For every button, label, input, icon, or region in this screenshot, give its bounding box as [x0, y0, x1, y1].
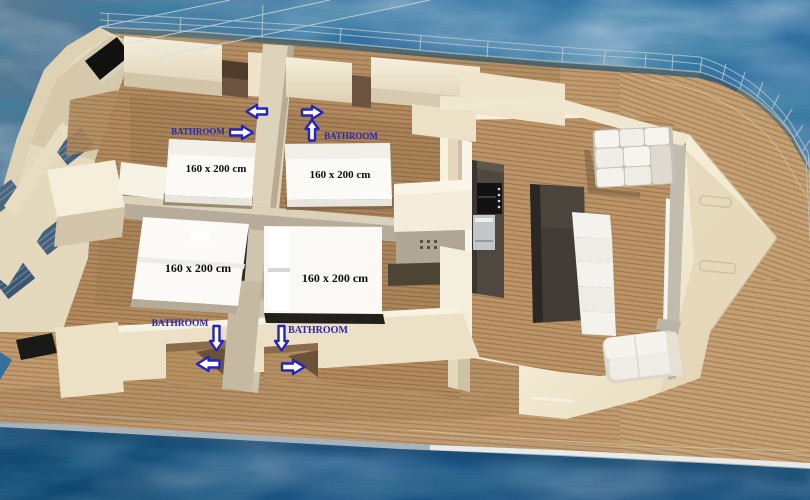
svg-text:BATHROOM: BATHROOM	[152, 319, 209, 329]
svg-text:160 x 200 cm: 160 x 200 cm	[310, 169, 371, 181]
svg-text:160 x 200 cm: 160 x 200 cm	[302, 271, 368, 285]
svg-text:BATHROOM: BATHROOM	[171, 127, 225, 137]
svg-text:BATHROOM: BATHROOM	[324, 131, 378, 141]
svg-text:160 x 200 cm: 160 x 200 cm	[165, 261, 231, 275]
svg-text:160 x 200 cm: 160 x 200 cm	[186, 163, 247, 175]
svg-text:BATHROOM: BATHROOM	[288, 325, 348, 336]
